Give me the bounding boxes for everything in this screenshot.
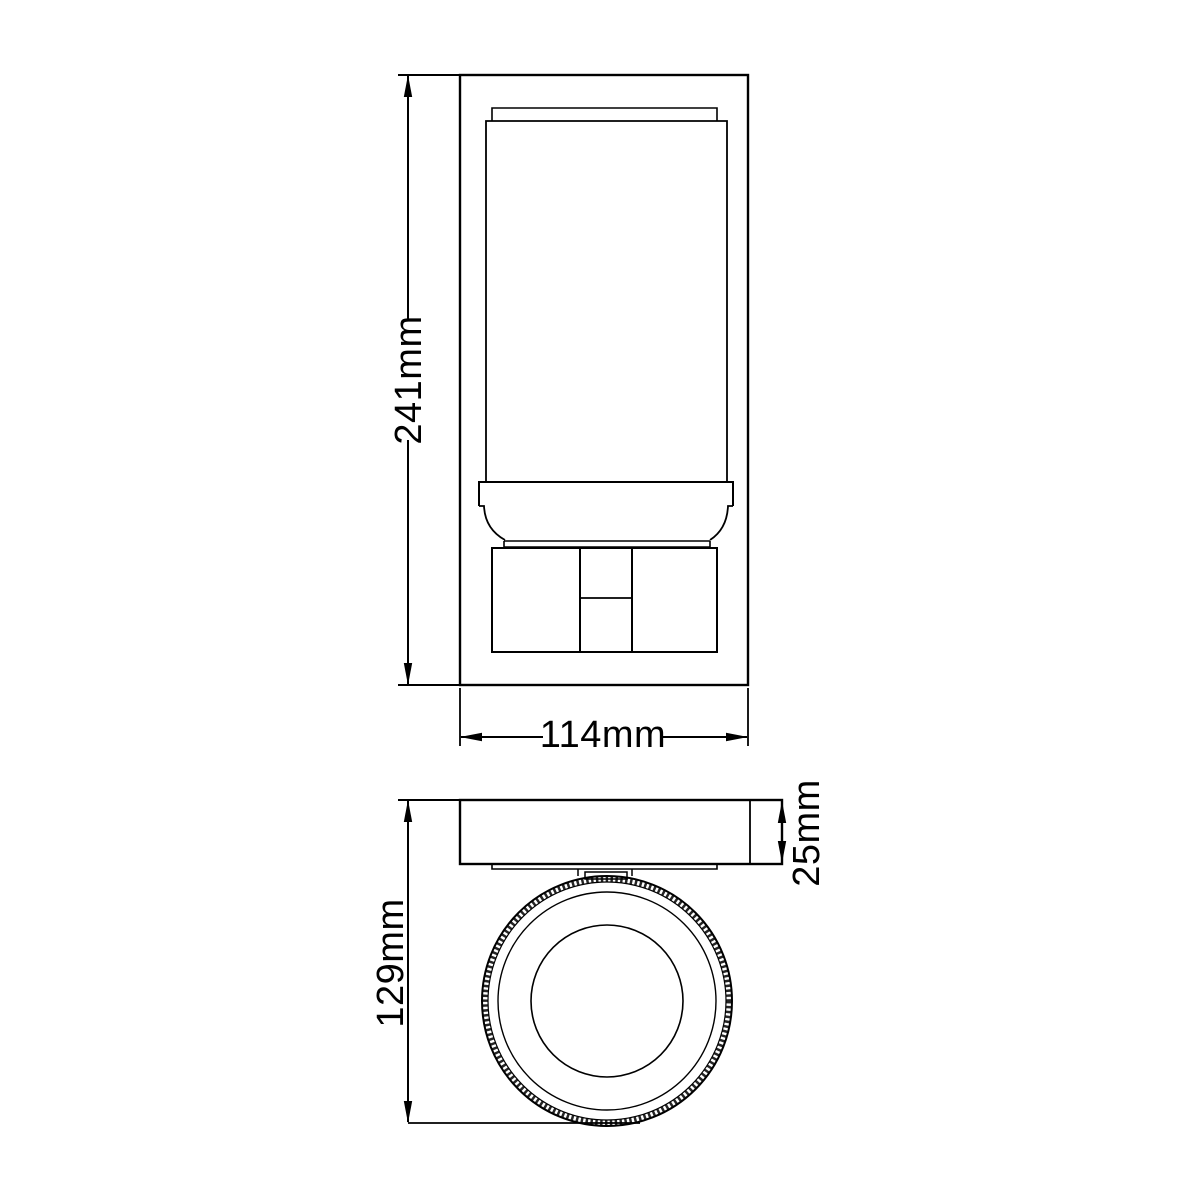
backplate-top-view [460, 800, 782, 864]
arrow-up-icon [778, 801, 786, 823]
width-dimension-label: 114mm [540, 716, 666, 754]
arrow-down-icon [778, 841, 786, 863]
front-elevation-view [460, 75, 748, 685]
dimension-depth [398, 800, 640, 1123]
plan-view [460, 800, 782, 1126]
holder-band [479, 482, 733, 506]
depth-dimension-label: 129mm [372, 898, 410, 1027]
frame-outline [460, 75, 748, 685]
dimension-drawing [0, 0, 1200, 1200]
mount-bracket [492, 548, 717, 652]
arrow-left-icon [460, 733, 482, 741]
mount-arm-column [580, 548, 632, 652]
holder-skirt-left [479, 506, 505, 540]
arrow-up-icon [404, 800, 412, 822]
cup-outer-ring-inner-edge [488, 882, 726, 1120]
height-dimension-label: 241mm [390, 315, 428, 444]
arrow-down-icon [404, 1101, 412, 1123]
arrow-down-icon [404, 663, 412, 685]
holder-lip [504, 541, 710, 547]
cup-knurl-texture [485, 879, 729, 1123]
dimension-thickness [778, 801, 786, 863]
glass-cylinder [486, 121, 727, 482]
technical-drawing-canvas: 241mm 114mm 129mm 25mm [0, 0, 1200, 1200]
cup-outer-ring [482, 876, 732, 1126]
holder-skirt-right [710, 506, 733, 540]
thickness-dimension-label: 25mm [788, 779, 826, 887]
arrow-up-icon [404, 75, 412, 97]
arrow-right-icon [726, 733, 748, 741]
cup-inner-circle [531, 925, 683, 1077]
cylinder-cap [492, 108, 717, 121]
